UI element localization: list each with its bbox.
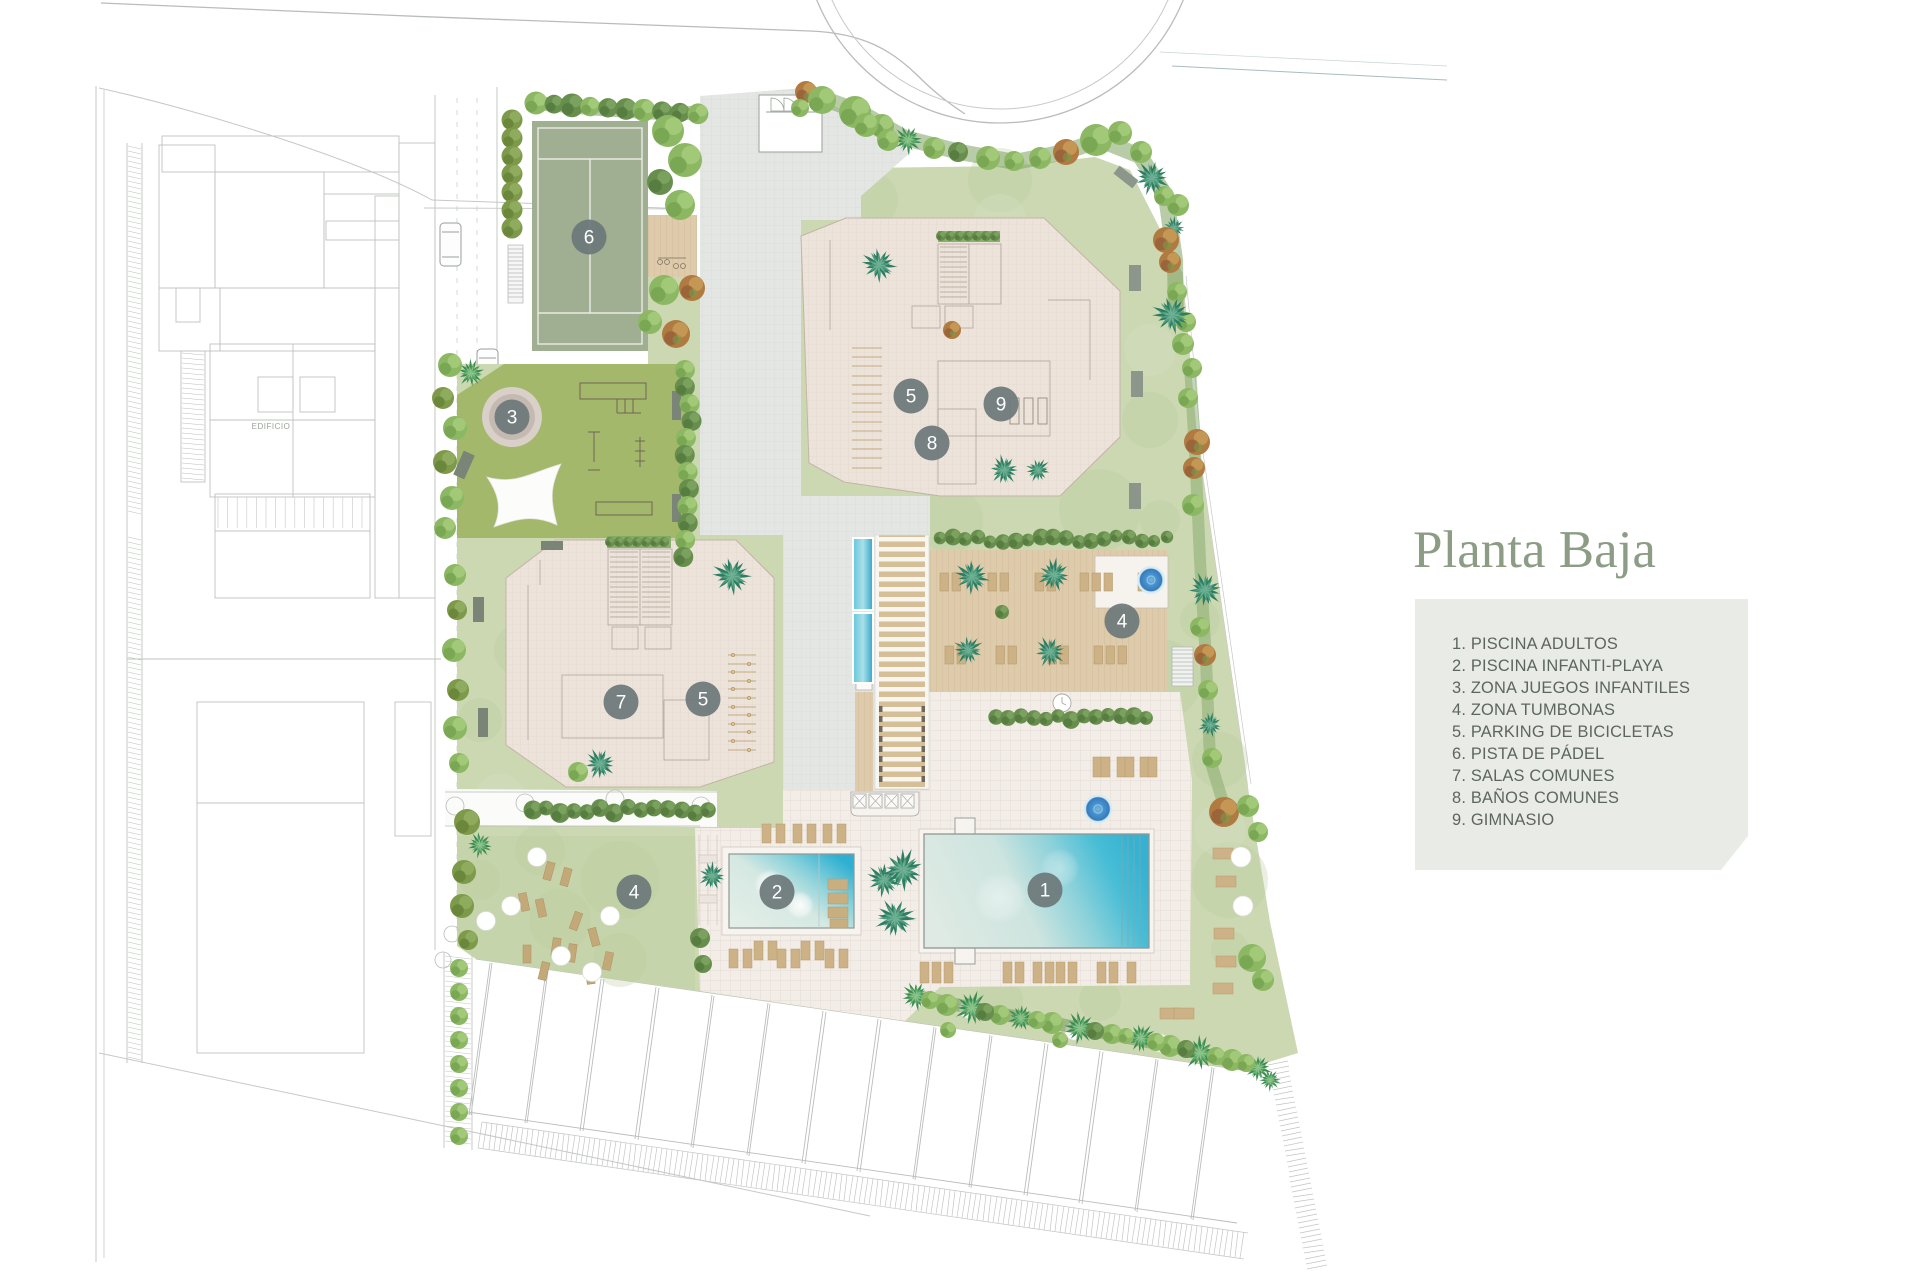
svg-text:8: 8 bbox=[927, 434, 938, 455]
svg-text:5: 5 bbox=[698, 690, 709, 711]
svg-text:5. PARKING DE BICICLETAS: 5. PARKING DE BICICLETAS bbox=[1452, 723, 1674, 741]
svg-text:7: 7 bbox=[616, 693, 627, 714]
svg-text:6. PISTA DE PÁDEL: 6. PISTA DE PÁDEL bbox=[1452, 744, 1605, 763]
svg-text:1. PISCINA ADULTOS: 1. PISCINA ADULTOS bbox=[1452, 635, 1618, 653]
svg-text:3. ZONA JUEGOS INFANTILES: 3. ZONA JUEGOS INFANTILES bbox=[1452, 679, 1690, 697]
svg-text:3: 3 bbox=[507, 408, 518, 429]
svg-text:7. SALAS COMUNES: 7. SALAS COMUNES bbox=[1452, 767, 1615, 785]
svg-text:Planta Baja: Planta Baja bbox=[1413, 521, 1656, 579]
svg-text:EDIFICIO: EDIFICIO bbox=[252, 422, 291, 431]
svg-text:1: 1 bbox=[1040, 881, 1051, 902]
svg-text:4. ZONA TUMBONAS: 4. ZONA TUMBONAS bbox=[1452, 701, 1615, 719]
svg-text:2. PISCINA INFANTI-PLAYA: 2. PISCINA INFANTI-PLAYA bbox=[1452, 657, 1663, 675]
svg-text:9. GIMNASIO: 9. GIMNASIO bbox=[1452, 811, 1554, 829]
svg-text:8. BAÑOS COMUNES: 8. BAÑOS COMUNES bbox=[1452, 787, 1619, 807]
svg-text:9: 9 bbox=[996, 395, 1007, 416]
svg-text:5: 5 bbox=[906, 387, 917, 408]
svg-text:6: 6 bbox=[584, 228, 595, 249]
svg-text:4: 4 bbox=[629, 883, 640, 904]
svg-text:4: 4 bbox=[1117, 612, 1128, 633]
svg-text:2: 2 bbox=[772, 883, 783, 904]
